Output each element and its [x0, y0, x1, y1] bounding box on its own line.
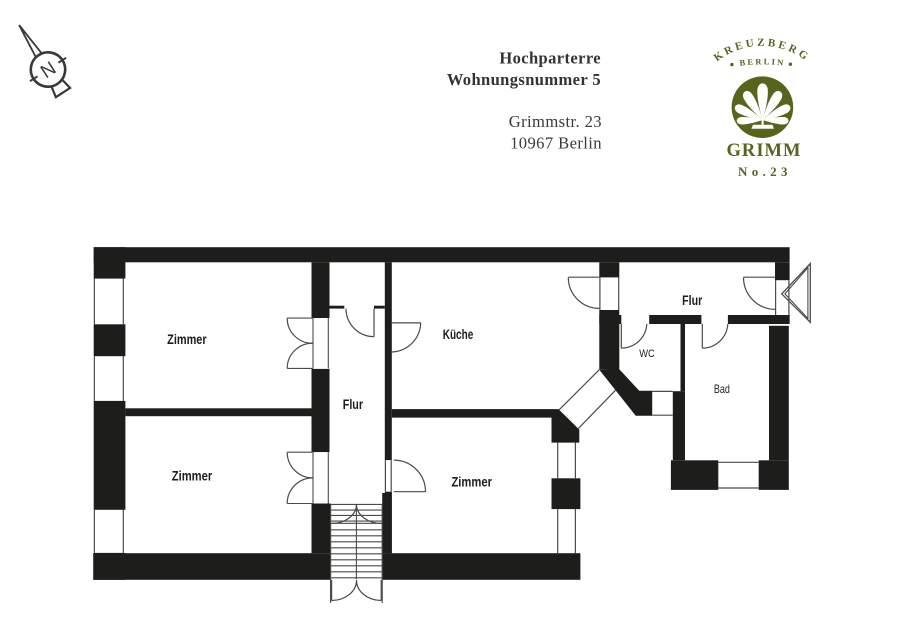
svg-text:Hochparterre: Hochparterre: [499, 48, 601, 67]
svg-text:Zimmer: Zimmer: [451, 474, 492, 490]
svg-text:10967 Berlin: 10967 Berlin: [510, 134, 602, 153]
svg-text:GRIMM: GRIMM: [727, 141, 804, 161]
svg-text:BERLIN: BERLIN: [739, 57, 786, 67]
svg-text:Flur: Flur: [343, 396, 364, 412]
svg-text:Flur: Flur: [682, 292, 703, 308]
svg-text:Zimmer: Zimmer: [172, 468, 213, 484]
svg-text:Bad: Bad: [714, 382, 730, 396]
svg-text:Wohnungsnummer 5: Wohnungsnummer 5: [447, 70, 601, 89]
svg-text:WC: WC: [639, 348, 655, 360]
svg-text:Zimmer: Zimmer: [167, 331, 207, 347]
svg-text:No.23: No.23: [738, 164, 789, 179]
svg-text:Küche: Küche: [443, 327, 474, 342]
svg-text:Grimmstr. 23: Grimmstr. 23: [509, 112, 602, 131]
